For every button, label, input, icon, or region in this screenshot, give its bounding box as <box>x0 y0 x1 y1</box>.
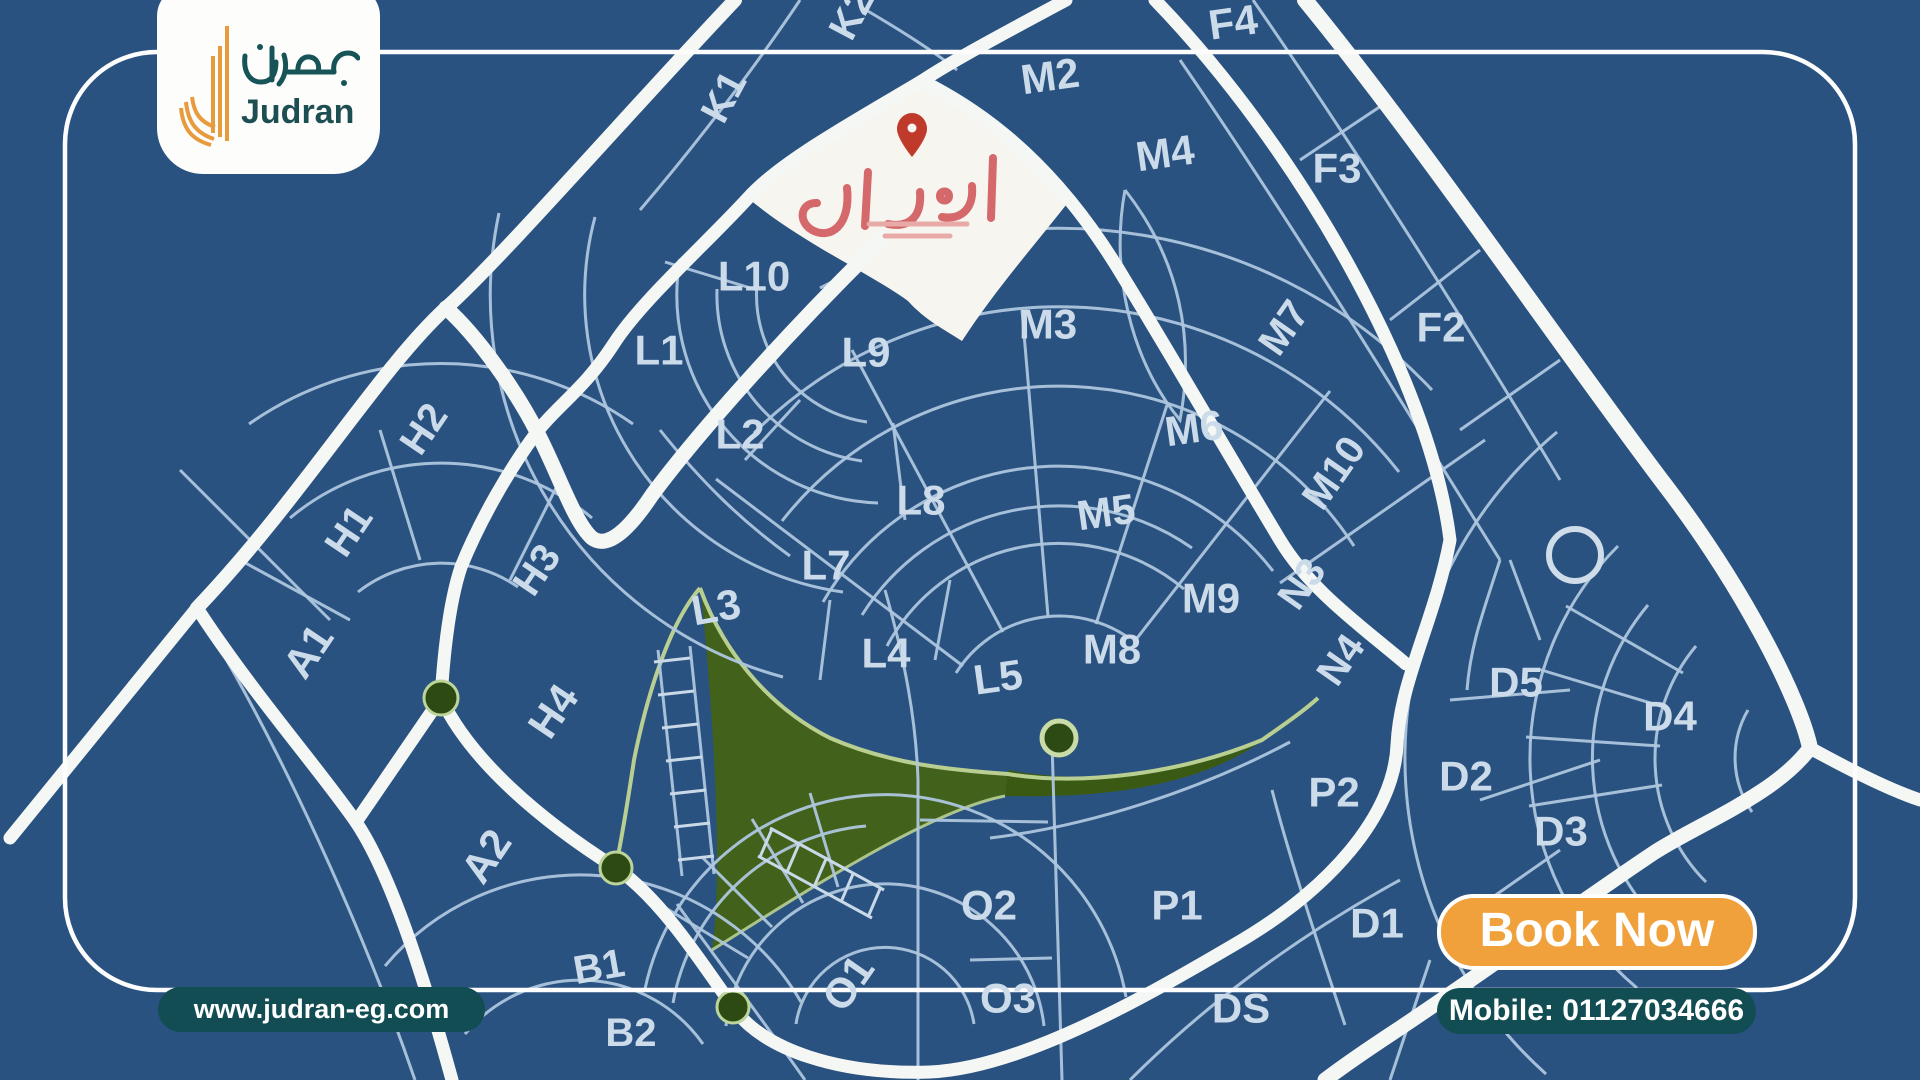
svg-text:L1: L1 <box>634 327 683 374</box>
svg-text:O2: O2 <box>961 882 1017 929</box>
svg-text:L8: L8 <box>896 477 945 524</box>
svg-text:L2: L2 <box>715 411 764 458</box>
svg-text:F3: F3 <box>1312 145 1361 192</box>
svg-text:M9: M9 <box>1182 575 1240 622</box>
svg-text:M4: M4 <box>1133 126 1198 181</box>
svg-text:L5: L5 <box>970 650 1025 703</box>
svg-text:D1: D1 <box>1350 900 1404 947</box>
svg-text:M3: M3 <box>1019 301 1077 348</box>
svg-text:D5: D5 <box>1489 659 1543 706</box>
svg-text:L7: L7 <box>801 542 850 589</box>
svg-text:M5: M5 <box>1074 485 1138 540</box>
svg-text:P2: P2 <box>1308 769 1359 816</box>
svg-text:L9: L9 <box>841 329 890 376</box>
svg-text:M2: M2 <box>1018 49 1082 104</box>
svg-text:M6: M6 <box>1162 401 1226 456</box>
svg-text:D3: D3 <box>1534 808 1588 855</box>
svg-text:B1: B1 <box>570 941 628 993</box>
svg-text:F4: F4 <box>1205 0 1261 49</box>
svg-text:D4: D4 <box>1643 693 1697 740</box>
svg-text:F2: F2 <box>1416 304 1465 351</box>
svg-text:L4: L4 <box>861 630 911 677</box>
svg-text:DS: DS <box>1212 985 1270 1032</box>
svg-text:B2: B2 <box>605 1011 656 1055</box>
svg-text:M8: M8 <box>1083 626 1141 673</box>
svg-text:O3: O3 <box>980 975 1036 1022</box>
svg-text:P1: P1 <box>1151 882 1202 929</box>
svg-text:L3: L3 <box>688 580 744 635</box>
svg-text:L10: L10 <box>718 253 790 300</box>
svg-text:D2: D2 <box>1439 753 1493 800</box>
